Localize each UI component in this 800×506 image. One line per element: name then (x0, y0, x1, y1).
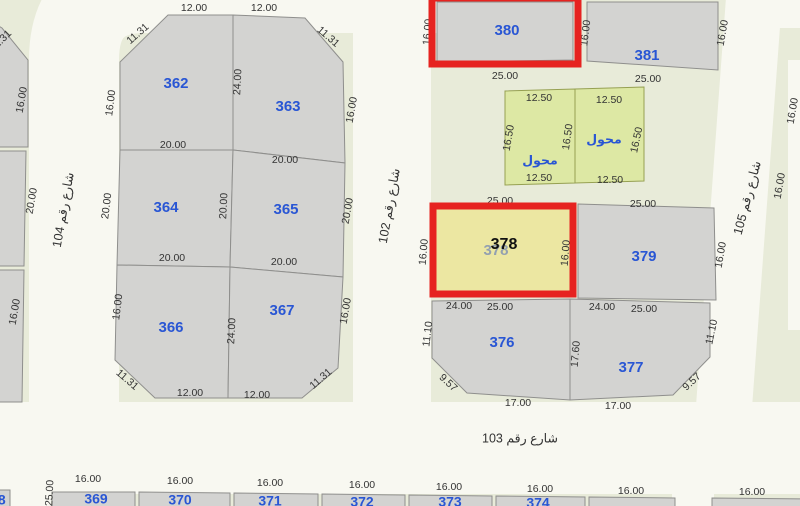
dimension-label: 12.00 (244, 389, 270, 401)
dimension-label: 12.50 (526, 172, 552, 184)
dimension-label: 16.00 (417, 238, 431, 265)
parcel-number-372: 372 (350, 494, 374, 506)
parcel-number-364: 364 (153, 199, 179, 216)
parcel-number-367: 367 (269, 302, 294, 319)
dimension-label: 17.00 (505, 397, 531, 409)
dimension-label: 25.00 (43, 479, 56, 506)
dimension-label: 16.00 (349, 479, 375, 491)
dimension-label: 12.50 (597, 174, 623, 186)
dimension-label: 12.00 (177, 387, 203, 399)
dimension-label: 24.00 (231, 68, 244, 95)
parcel[interactable] (0, 270, 24, 402)
parcel-number-380: 380 (494, 22, 519, 39)
dimension-label: 16.00 (167, 475, 193, 487)
parcel-number-363: 363 (275, 98, 300, 115)
dimension-label: 16.00 (618, 485, 644, 497)
dimension-label: 24.00 (225, 317, 238, 344)
dimension-label: 20.00 (217, 192, 230, 219)
parcel-number-محول: محول (522, 153, 557, 167)
parcel-number-371: 371 (258, 493, 282, 506)
parcel-number-376: 376 (489, 334, 514, 351)
dimension-label: 20.00 (272, 154, 298, 166)
parcel-number-379: 379 (631, 248, 656, 265)
dimension-label: 24.00 (446, 300, 472, 312)
dimension-label: 20.00 (159, 252, 185, 264)
dimension-label: 12.50 (596, 94, 622, 106)
parcel-number-381: 381 (634, 47, 659, 64)
dimension-label: 25.00 (631, 303, 657, 315)
parcel-number-373: 373 (438, 494, 462, 506)
parcel-number-374: 374 (526, 495, 550, 506)
dimension-label: 25.00 (630, 198, 656, 210)
dimension-label: 12.00 (251, 2, 277, 14)
dimension-label: 16.00 (257, 477, 283, 489)
dimension-label: 16.00 (75, 473, 101, 485)
annotation-parcel-number: 378 (491, 236, 518, 253)
parcel-map[interactable]: 362363364365366367380381محولمحول37837937… (0, 0, 800, 506)
dimension-label: 17.00 (605, 400, 631, 412)
parcel-number-369: 369 (84, 491, 108, 506)
dimension-label: 25.00 (487, 301, 513, 313)
parcel-number-377: 377 (618, 359, 643, 376)
parcel-number-368: 368 (0, 492, 6, 506)
dimension-label: 16.00 (527, 483, 553, 495)
dimension-label: 16.00 (739, 486, 765, 498)
street-label: شارع رقم 103 (482, 431, 558, 446)
dimension-label: 12.00 (181, 2, 207, 14)
parcel-number-366: 366 (158, 319, 183, 336)
dimension-label: 12.50 (526, 92, 552, 104)
parcel-number-362: 362 (163, 75, 188, 92)
parcel-number-370: 370 (168, 492, 192, 506)
parcel-number-365: 365 (273, 201, 298, 218)
map-viewport: 362363364365366367380381محولمحول37837937… (0, 0, 800, 506)
parcel[interactable] (712, 498, 800, 506)
dimension-label: 25.00 (635, 73, 661, 85)
parcel[interactable] (589, 497, 675, 506)
parcel-number-محول: محول (586, 132, 621, 146)
dimension-label: 25.00 (492, 70, 518, 82)
parcel[interactable] (0, 151, 26, 266)
dimension-label: 20.00 (160, 139, 186, 151)
dimension-label: 17.60 (569, 340, 583, 367)
dimension-label: 16.00 (436, 481, 462, 493)
dimension-label: 24.00 (589, 301, 615, 313)
dimension-label: 20.00 (271, 256, 297, 268)
